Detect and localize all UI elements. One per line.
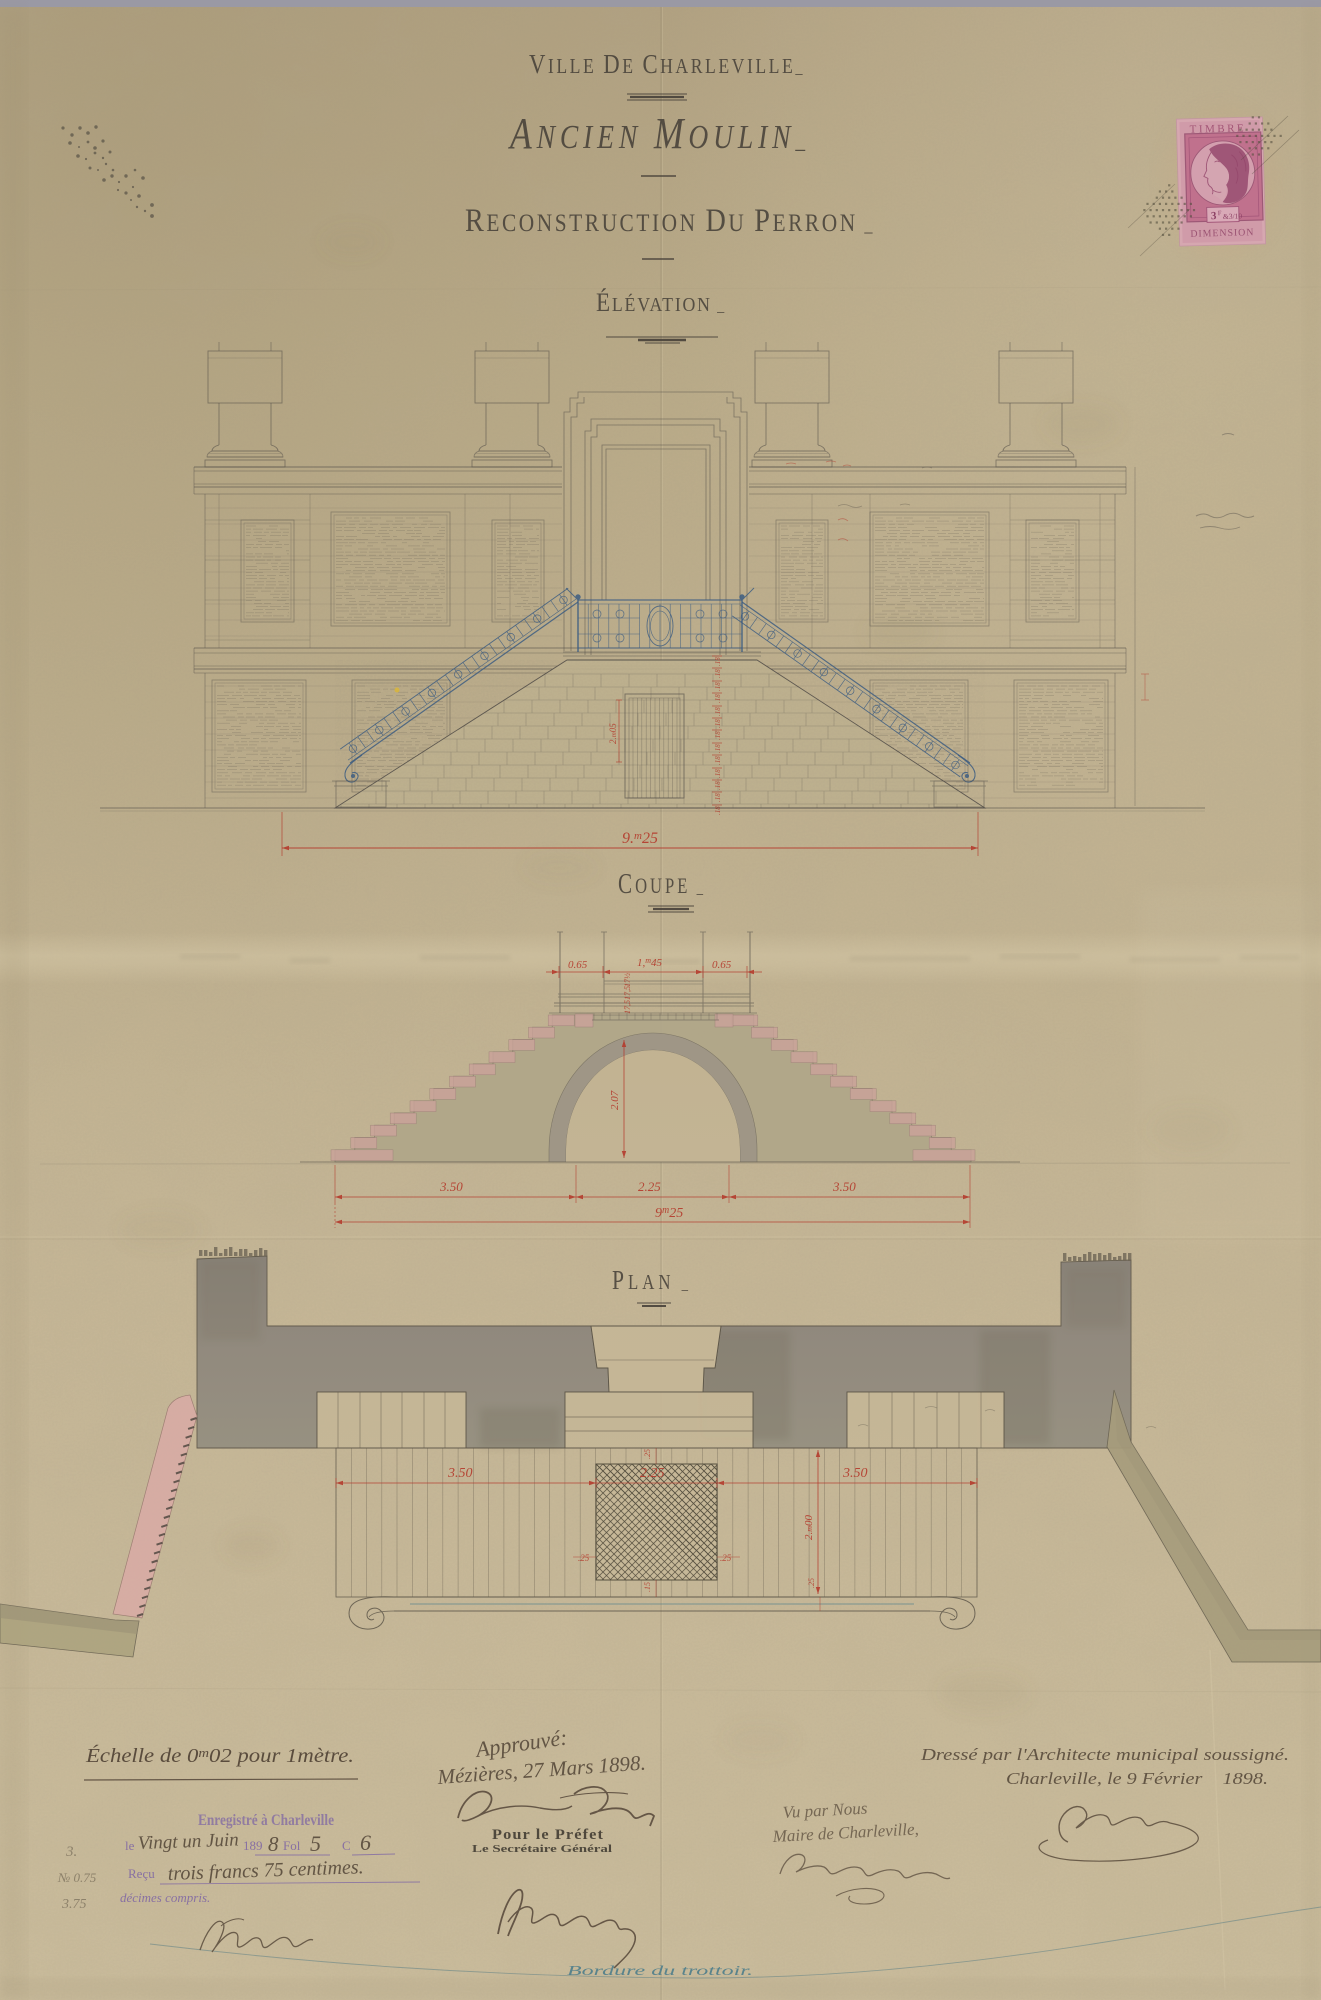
svg-text:.18: .18: [714, 769, 722, 778]
svg-text:le: le: [125, 1838, 135, 1853]
svg-text:3.50: 3.50: [832, 1179, 856, 1194]
svg-text:Fol: Fol: [283, 1838, 301, 1853]
svg-text:.18: .18: [714, 806, 722, 815]
svg-text:3: 3: [1211, 210, 1217, 222]
svg-text:Échelle de 0m02 pour 1mètre.: Échelle de 0m02 pour 1mètre.: [85, 1744, 354, 1767]
svg-text:.25: .25: [807, 1578, 816, 1588]
svg-text:2.m00: 2.m00: [803, 1514, 815, 1540]
svg-text:3.50: 3.50: [842, 1466, 868, 1481]
svg-text:.18: .18: [714, 707, 722, 716]
svg-text:0.65: 0.65: [712, 959, 732, 971]
svg-text:189: 189: [243, 1838, 263, 1853]
svg-text:.25: .25: [720, 1553, 732, 1563]
svg-text:.25: .25: [578, 1553, 590, 1563]
svg-text:2.07: 2.07: [609, 1090, 621, 1110]
svg-text:F: F: [1218, 210, 1222, 217]
svg-text:Vingt un Juin: Vingt un Juin: [137, 1829, 239, 1854]
svg-text:2.25: 2.25: [640, 1466, 665, 1481]
svg-text:№ 0.75: № 0.75: [57, 1870, 97, 1885]
svg-text:.18: .18: [714, 744, 722, 753]
svg-text:9m25: 9m25: [655, 1205, 683, 1221]
svg-text:C: C: [342, 1838, 351, 1853]
svg-text:DIMENSION: DIMENSION: [1190, 227, 1254, 240]
svg-text:2.m05: 2.m05: [608, 723, 618, 744]
svg-text:.18: .18: [714, 756, 722, 765]
svg-text:.18: .18: [714, 657, 722, 666]
svg-text:3.50: 3.50: [439, 1179, 463, 1194]
svg-text:VILLE DE CHARLEVILLE_: VILLE DE CHARLEVILLE_: [529, 49, 805, 79]
svg-text:Le Secrétaire Général: Le Secrétaire Général: [472, 1843, 612, 1855]
svg-text:Dressé par l'Architecte munici: Dressé par l'Architecte municipal soussi…: [920, 1745, 1289, 1764]
svg-text:Reçu: Reçu: [128, 1866, 155, 1881]
svg-text:6: 6: [360, 1830, 371, 1855]
svg-text:17,5: 17,5: [623, 1000, 632, 1014]
svg-text:Pour le Préfet: Pour le Préfet: [492, 1827, 604, 1843]
svg-text:Bordure du trottoir.: Bordure du trottoir.: [567, 1964, 753, 1979]
svg-text:2.25: 2.25: [638, 1179, 661, 1194]
svg-text:.18: .18: [714, 781, 722, 790]
svg-text:décimes compris.: décimes compris.: [120, 1890, 210, 1905]
svg-text:3.: 3.: [65, 1844, 77, 1860]
svg-text:17½: 17½: [623, 973, 632, 987]
svg-text:.25: .25: [643, 1449, 652, 1459]
svg-text:Enregistré à Charleville: Enregistré à Charleville: [198, 1812, 334, 1829]
svg-text:.18: .18: [714, 719, 722, 728]
svg-text:.18: .18: [714, 731, 722, 740]
svg-text:.15: .15: [643, 1582, 652, 1592]
svg-text:3.50: 3.50: [447, 1466, 473, 1481]
svg-text:.18: .18: [714, 793, 722, 802]
svg-text:8: 8: [268, 1832, 279, 1856]
svg-text:.18: .18: [714, 694, 722, 703]
svg-text:17,5: 17,5: [623, 986, 632, 1000]
svg-text:.18: .18: [714, 669, 722, 678]
svg-text:0.65: 0.65: [568, 959, 588, 971]
svg-text:&3/10: &3/10: [1223, 211, 1243, 221]
svg-text:Charleville, le 9 Février 1: Charleville, le 9 Février 1898.: [1006, 1769, 1268, 1788]
svg-text:3.75: 3.75: [61, 1897, 87, 1912]
svg-text:5: 5: [310, 1831, 321, 1856]
svg-text:.18: .18: [714, 682, 722, 691]
